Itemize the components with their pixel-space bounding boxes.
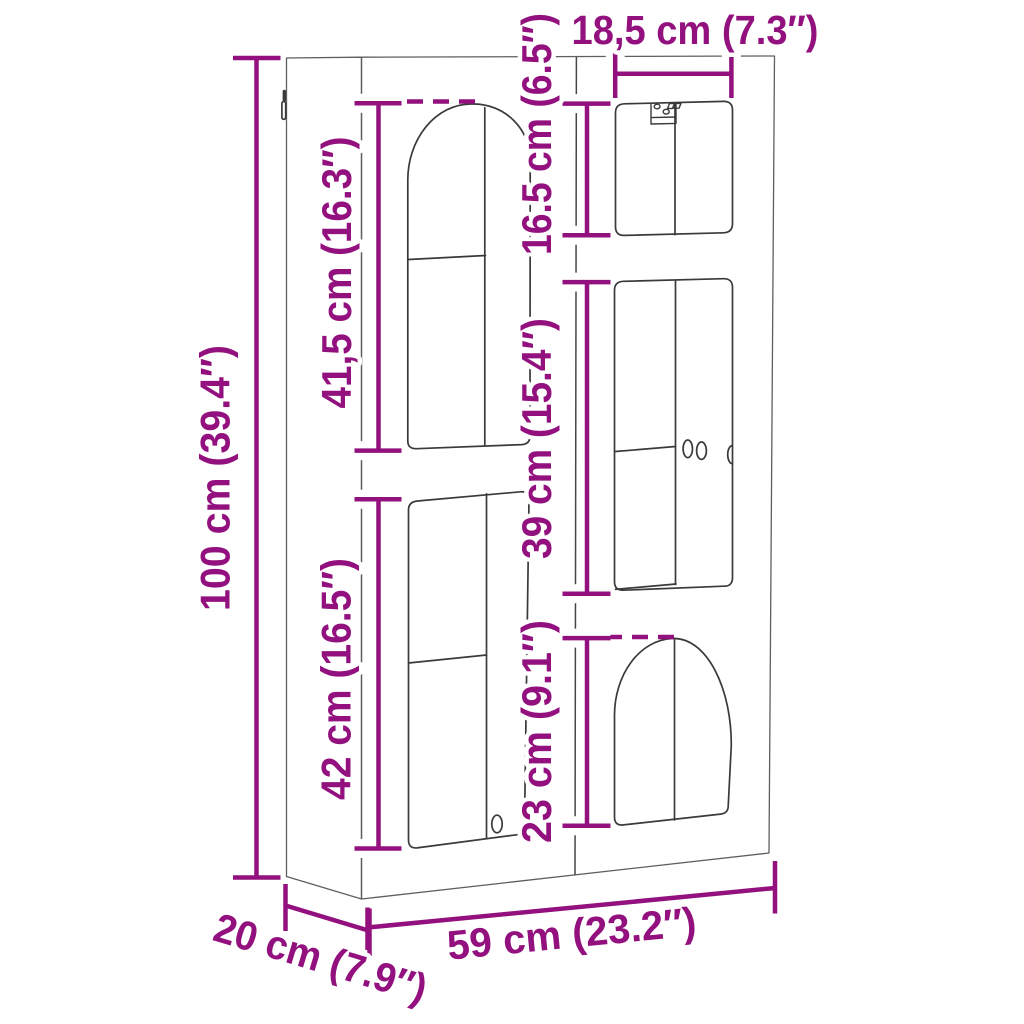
svg-text:23 cm (9.1″): 23 cm (9.1″) — [513, 620, 560, 843]
svg-text:39 cm (15.4″): 39 cm (15.4″) — [513, 318, 560, 559]
svg-text:41,5 cm (16.3″): 41,5 cm (16.3″) — [313, 137, 360, 409]
svg-text:18,5 cm (7.3″): 18,5 cm (7.3″) — [572, 7, 819, 53]
svg-text:100 cm (39.4″): 100 cm (39.4″) — [192, 345, 239, 611]
svg-text:42 cm (16.5″): 42 cm (16.5″) — [313, 558, 360, 800]
svg-text:16.5 cm (6.5″): 16.5 cm (6.5″) — [513, 13, 560, 255]
